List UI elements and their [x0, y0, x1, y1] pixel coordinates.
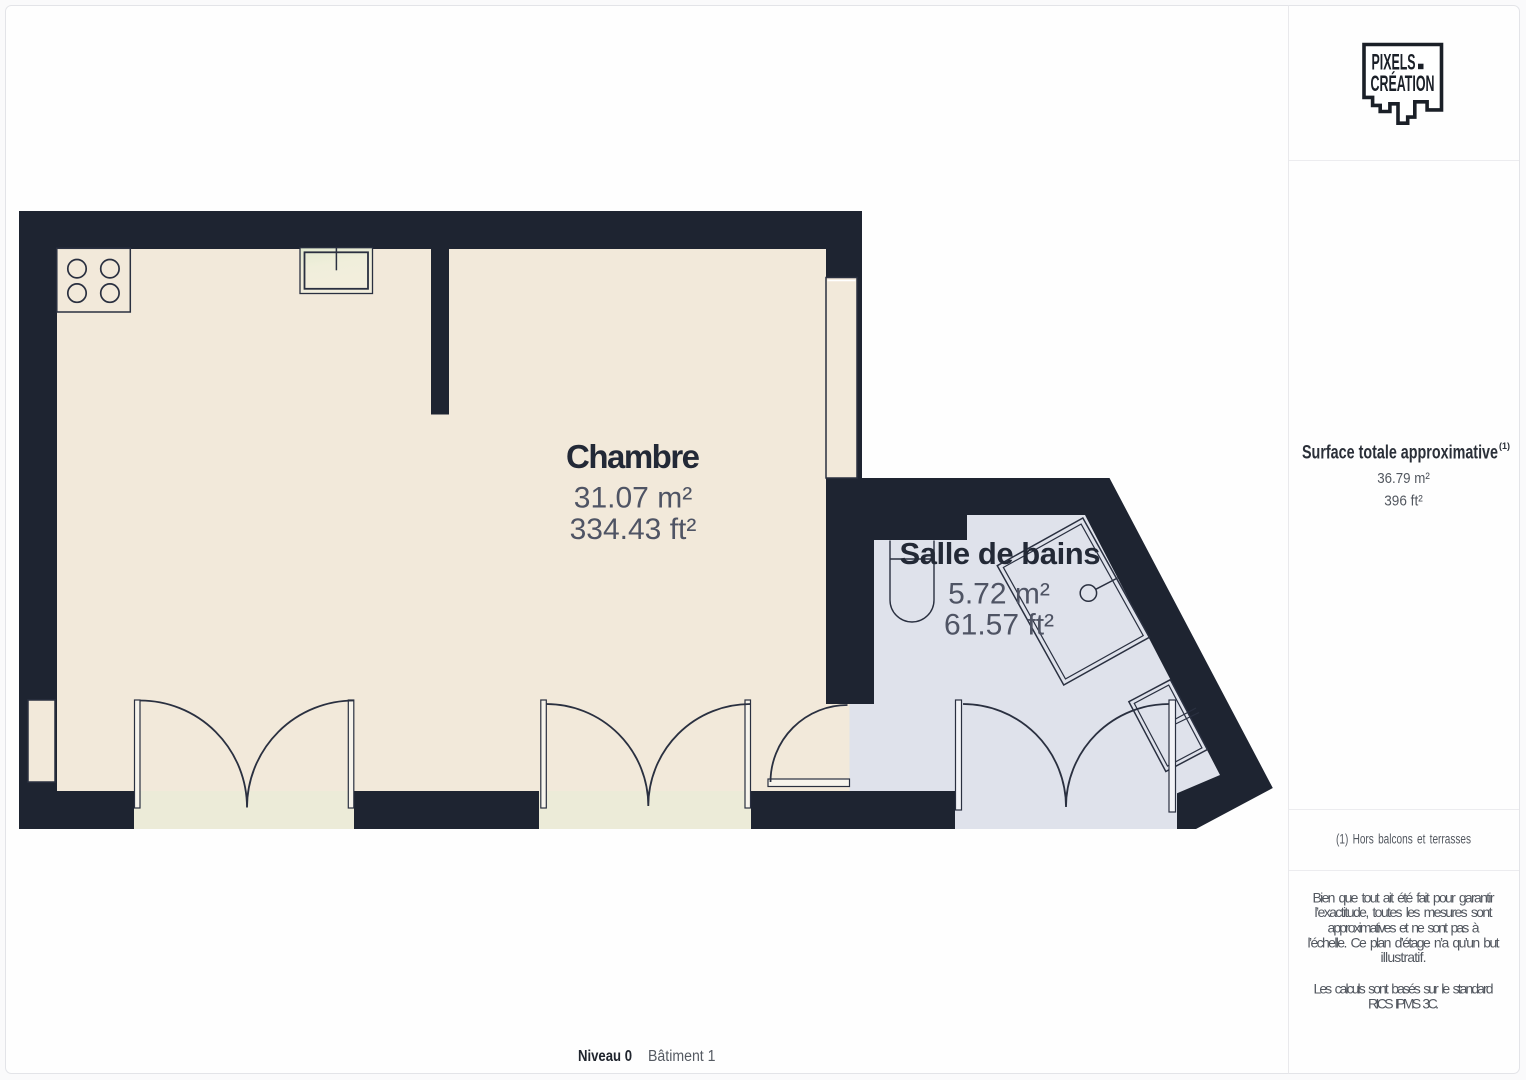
svg-text:Salle de bains: Salle de bains [900, 536, 1101, 571]
svg-text:396 ft²: 396 ft² [1384, 492, 1423, 509]
svg-text:l’échelle. Ce plan d’étage n’a: l’échelle. Ce plan d’étage n’a qu’un but [1308, 934, 1500, 950]
svg-text:36.79 m²: 36.79 m² [1377, 470, 1430, 487]
svg-text:334.43 ft²: 334.43 ft² [570, 513, 697, 546]
svg-text:31.07 m²: 31.07 m² [574, 482, 692, 515]
svg-text:l’exactitude, toutes les mesur: l’exactitude, toutes les mesures sont [1315, 904, 1493, 920]
svg-text:Surface totale approximative: Surface totale approximative [1302, 443, 1498, 464]
svg-text:RICS IPMS 3C.: RICS IPMS 3C. [1368, 996, 1439, 1012]
svg-text:CRÉATION: CRÉATION [1371, 71, 1435, 96]
svg-text:Les calculs sont basés sur le: Les calculs sont basés sur le standard [1314, 981, 1494, 997]
svg-text:approximatives et ne sont pas: approximatives et ne sont pas à [1328, 919, 1480, 935]
svg-text:Niveau 0: Niveau 0 [578, 1048, 632, 1065]
svg-text:(1): (1) [1499, 441, 1510, 451]
svg-text:Bâtiment 1: Bâtiment 1 [648, 1048, 716, 1065]
svg-text:5.72 m²: 5.72 m² [948, 578, 1050, 611]
svg-text:illustratif.: illustratif. [1381, 949, 1427, 965]
svg-text:Chambre: Chambre [566, 438, 700, 475]
svg-text:(1) Hors balcons et terrasses: (1) Hors balcons et terrasses [1336, 832, 1471, 847]
svg-text:61.57 ft²: 61.57 ft² [944, 609, 1054, 642]
svg-text:Bien que tout ait été fait pou: Bien que tout ait été fait pour garantir [1313, 889, 1495, 905]
